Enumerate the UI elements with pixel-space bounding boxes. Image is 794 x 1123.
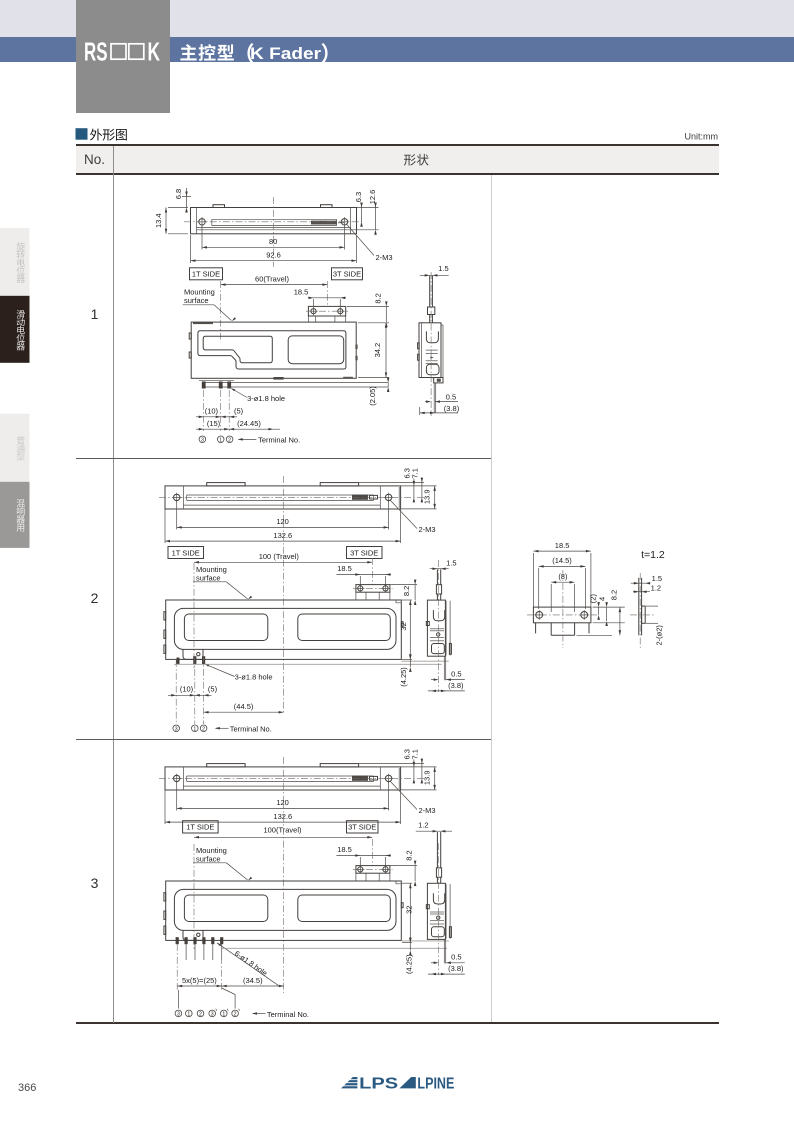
- svg-text:7.1: 7.1: [411, 749, 420, 759]
- svg-text:1.2: 1.2: [651, 584, 661, 593]
- svg-text:Terminal No.: Terminal No.: [258, 435, 300, 444]
- svg-text:18.5: 18.5: [337, 564, 352, 573]
- svg-text:(15): (15): [207, 419, 221, 428]
- svg-text:(14.5): (14.5): [552, 556, 572, 565]
- svg-text:(5): (5): [208, 685, 218, 694]
- svg-text:12.6: 12.6: [368, 190, 377, 205]
- svg-text:4: 4: [597, 597, 606, 601]
- svg-text:34.2: 34.2: [373, 343, 382, 358]
- svg-text:5x(5)=(25): 5x(5)=(25): [182, 976, 217, 985]
- svg-text:32: 32: [399, 622, 408, 630]
- svg-text:0.5: 0.5: [446, 392, 456, 401]
- svg-text:13.9: 13.9: [423, 489, 432, 504]
- svg-text:surface: surface: [196, 854, 221, 863]
- svg-text:6-ø1.8 hole: 6-ø1.8 hole: [233, 949, 269, 978]
- svg-text:1T SIDE: 1T SIDE: [192, 270, 220, 279]
- svg-text:100 (Travel): 100 (Travel): [259, 552, 300, 561]
- svg-text:6.8: 6.8: [174, 189, 183, 199]
- svg-text:1: 1: [187, 1012, 190, 1018]
- svg-text:8.2: 8.2: [405, 850, 414, 860]
- svg-text:(24.45): (24.45): [237, 419, 261, 428]
- svg-text:2: 2: [202, 726, 205, 732]
- svg-text:1.5: 1.5: [652, 574, 662, 583]
- svg-text:60(Travel): 60(Travel): [255, 275, 289, 284]
- svg-text:3-ø1.8 hole: 3-ø1.8 hole: [247, 394, 285, 403]
- svg-text:3T SIDE: 3T SIDE: [350, 548, 378, 557]
- svg-text:surface: surface: [184, 296, 209, 305]
- svg-text:(3.8): (3.8): [448, 681, 464, 690]
- svg-text:Terminal No.: Terminal No.: [230, 725, 272, 734]
- svg-text:100(Travel): 100(Travel): [263, 826, 302, 835]
- svg-text:3: 3: [211, 1012, 214, 1018]
- svg-text:1: 1: [219, 437, 222, 443]
- svg-text:(3.8): (3.8): [448, 964, 464, 973]
- svg-text:(2.05): (2.05): [368, 386, 377, 406]
- svg-text:7.1: 7.1: [411, 468, 420, 478]
- svg-text:13.4: 13.4: [154, 213, 163, 228]
- svg-text:(4.25): (4.25): [404, 954, 413, 974]
- svg-text:1.5: 1.5: [438, 264, 448, 273]
- svg-text:3: 3: [201, 437, 204, 443]
- svg-text:1T SIDE: 1T SIDE: [186, 823, 214, 832]
- svg-text:LPINE: LPINE: [417, 1077, 454, 1091]
- svg-text:2: 2: [234, 1012, 237, 1018]
- svg-text:1.2: 1.2: [418, 821, 428, 830]
- svg-text:(5): (5): [234, 406, 244, 415]
- svg-text:32: 32: [404, 906, 413, 914]
- svg-text:1: 1: [222, 1012, 225, 1018]
- svg-text:1.5: 1.5: [446, 558, 456, 567]
- svg-text:120: 120: [276, 517, 289, 526]
- svg-text:2-M3: 2-M3: [376, 253, 393, 262]
- svg-text:132.6: 132.6: [273, 531, 292, 540]
- svg-text:surface: surface: [196, 573, 221, 582]
- svg-text:(3.8): (3.8): [444, 404, 460, 413]
- svg-text:Terminal No.: Terminal No.: [267, 1010, 309, 1019]
- svg-text:132.6: 132.6: [273, 812, 292, 821]
- svg-text:120: 120: [276, 798, 289, 807]
- svg-text:0.5: 0.5: [451, 669, 461, 678]
- svg-text:6.3: 6.3: [354, 192, 363, 202]
- svg-text:8.2: 8.2: [610, 590, 619, 600]
- svg-text:LPS: LPS: [359, 1077, 398, 1091]
- svg-text:(10): (10): [180, 685, 194, 694]
- svg-text:2: 2: [199, 1012, 202, 1018]
- svg-text:18.5: 18.5: [337, 845, 352, 854]
- svg-text:3: 3: [177, 1012, 180, 1018]
- svg-text:(10): (10): [205, 406, 219, 415]
- svg-text:(2): (2): [588, 594, 597, 604]
- svg-text:3T SIDE: 3T SIDE: [348, 823, 376, 832]
- svg-text:2-M3: 2-M3: [419, 806, 436, 815]
- svg-text:18.5: 18.5: [555, 541, 570, 550]
- svg-text:18.5: 18.5: [294, 288, 309, 297]
- svg-text:(4.25): (4.25): [399, 667, 408, 687]
- svg-text:3-ø1.8 hole: 3-ø1.8 hole: [235, 673, 273, 682]
- svg-text:8.2: 8.2: [402, 586, 411, 596]
- svg-text:(34.5): (34.5): [243, 976, 263, 985]
- svg-text:3: 3: [175, 726, 178, 732]
- svg-text:8.2: 8.2: [373, 293, 382, 303]
- svg-text:2-(ø2): 2-(ø2): [655, 625, 664, 646]
- svg-text:2-M3: 2-M3: [419, 525, 436, 534]
- svg-text:0.5: 0.5: [451, 953, 461, 962]
- svg-text:1: 1: [193, 726, 196, 732]
- svg-text:3T SIDE: 3T SIDE: [333, 270, 361, 279]
- svg-text:13.9: 13.9: [423, 770, 432, 785]
- svg-text:(44.5): (44.5): [234, 702, 254, 711]
- svg-text:t=1.2: t=1.2: [641, 549, 665, 561]
- svg-text:1T SIDE: 1T SIDE: [172, 548, 200, 557]
- svg-text:80: 80: [269, 237, 277, 246]
- svg-text:2: 2: [228, 437, 231, 443]
- svg-text:92.6: 92.6: [266, 251, 281, 260]
